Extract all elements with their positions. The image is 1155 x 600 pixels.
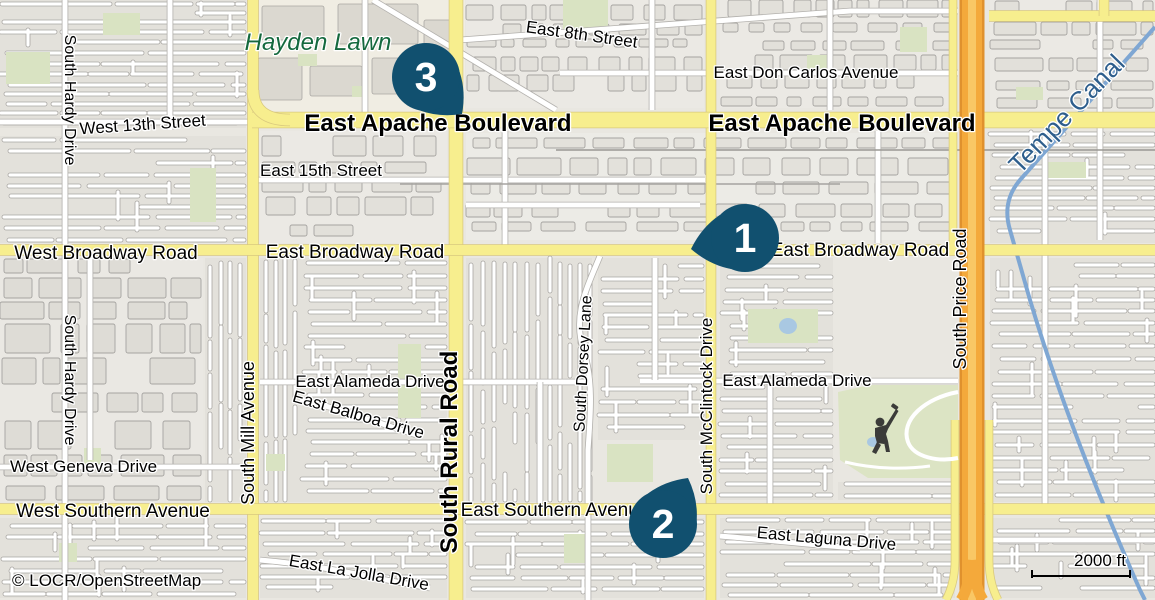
svg-text:West Southern Avenue: West Southern Avenue (16, 501, 210, 522)
svg-text:1: 1 (734, 215, 757, 261)
svg-text:South Hardy Drive: South Hardy Drive (61, 35, 78, 166)
svg-text:East Broadway Road: East Broadway Road (266, 242, 445, 263)
svg-text:South Price Road: South Price Road (950, 228, 970, 369)
svg-text:2000 ft: 2000 ft (1074, 551, 1126, 570)
svg-text:East Alameda Drive: East Alameda Drive (295, 372, 444, 391)
svg-text:Hayden Lawn: Hayden Lawn (245, 29, 392, 56)
svg-text:West Geneva Drive: West Geneva Drive (10, 457, 157, 476)
svg-text:2: 2 (652, 501, 675, 547)
svg-text:East Broadway Road: East Broadway Road (771, 240, 950, 261)
svg-text:South Rural Road: South Rural Road (436, 351, 463, 554)
svg-text:© LOCR/OpenStreetMap: © LOCR/OpenStreetMap (12, 571, 201, 590)
svg-text:East Apache Boulevard: East Apache Boulevard (708, 110, 975, 137)
svg-text:South Hardy Drive: South Hardy Drive (61, 315, 78, 446)
svg-text:South McClintock Drive: South McClintock Drive (697, 318, 716, 495)
svg-text:West Broadway Road: West Broadway Road (14, 243, 197, 264)
svg-text:East Don Carlos Avenue: East Don Carlos Avenue (714, 63, 899, 82)
svg-text:East Southern Avenue: East Southern Avenue (461, 500, 650, 521)
svg-text:East 15th Street: East 15th Street (260, 161, 382, 180)
svg-text:South Mill Avenue: South Mill Avenue (238, 361, 258, 505)
svg-text:3: 3 (415, 54, 438, 100)
svg-text:East Alameda Drive: East Alameda Drive (722, 371, 871, 390)
